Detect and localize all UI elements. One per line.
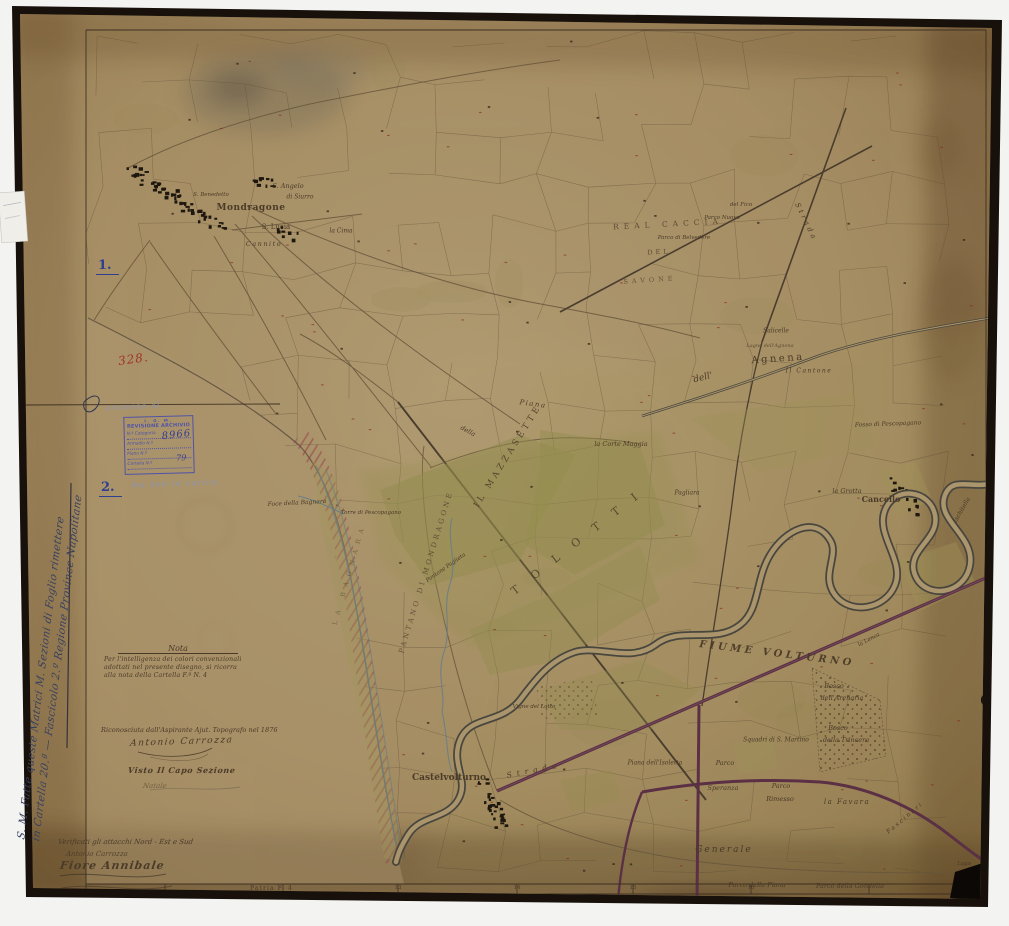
scanned-map-sheet: MondragoneS. Angelodi SiurroS. LuciaS. B… bbox=[0, 0, 1009, 926]
sheet-content bbox=[10, 6, 1006, 919]
map-sheet-graphic bbox=[0, 0, 1009, 926]
archive-tag bbox=[0, 191, 28, 243]
